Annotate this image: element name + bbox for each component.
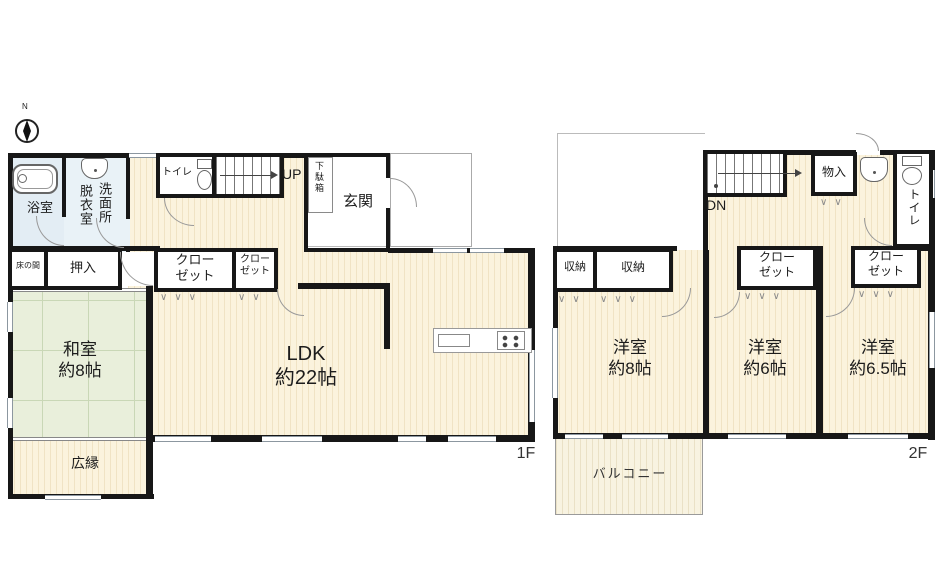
window-marker xyxy=(728,434,786,439)
folding-door-marker: ∨∨∨ xyxy=(744,292,812,302)
wall-segment xyxy=(703,250,709,438)
stair-arrowhead-icon xyxy=(795,169,802,177)
stair-arrow-start xyxy=(714,184,718,188)
roof-outline xyxy=(557,133,558,247)
window-marker xyxy=(552,328,558,398)
kitchen-partition-wall xyxy=(384,283,390,349)
compass-north-label: N xyxy=(22,102,28,111)
stair-arrow-icon xyxy=(220,175,272,176)
bathtub-icon xyxy=(12,164,58,194)
window-marker xyxy=(448,436,496,442)
entrance-step-line xyxy=(308,246,386,247)
folding-door-marker: ∨∨∨ xyxy=(600,295,668,305)
window-marker xyxy=(622,434,668,439)
storage-b-label: 収納 xyxy=(598,260,668,275)
stove-icon xyxy=(497,331,525,350)
window-marker xyxy=(398,436,426,442)
entrance-label: 玄関 xyxy=(330,193,386,211)
storage-a-label: 収納 xyxy=(555,261,595,274)
bedroom-6-label: 洋室 約6帖 xyxy=(715,338,815,379)
compass-north-icon xyxy=(10,110,44,146)
toilet-label-1f: トイレ xyxy=(159,167,195,179)
folding-door-marker: ∨∨∨ xyxy=(858,290,916,300)
door-arc xyxy=(856,133,879,151)
kitchen-partition-wall xyxy=(298,283,390,289)
toilet-icon xyxy=(901,156,923,184)
bedroom-6-5-label: 洋室 約6.5帖 xyxy=(828,338,928,379)
closet-label-1f-small: クロー ゼット xyxy=(234,254,276,278)
ldk-label: LDK 約22帖 xyxy=(256,342,356,391)
wall-segment xyxy=(62,153,66,217)
dressing-room-label-left: 脱衣室 xyxy=(76,184,95,226)
floor2-label: 2F xyxy=(902,444,934,464)
window-marker xyxy=(433,248,467,253)
closet-east-label: クロー ゼット xyxy=(854,249,918,278)
sliding-door-marker xyxy=(13,437,146,441)
folding-door-marker: ∨∨ xyxy=(558,295,594,305)
window-marker xyxy=(7,302,13,332)
balcony-label: バルコニー xyxy=(582,466,678,482)
storage-small-label: 物入 xyxy=(814,165,854,180)
veranda-label: 広縁 xyxy=(55,455,115,472)
bedroom-8-label: 洋室 約8帖 xyxy=(580,338,680,379)
window-marker xyxy=(529,350,535,422)
kitchen-sink-icon xyxy=(438,334,470,347)
folding-door-marker: ∨∨ xyxy=(238,293,278,303)
window-marker xyxy=(470,248,504,253)
window-marker xyxy=(155,436,211,442)
floorplan-canvas: N トイレ UP 下駄箱 玄関 床の間 xyxy=(0,0,940,564)
window-marker xyxy=(848,434,908,439)
washbasin-icon xyxy=(860,157,888,182)
closet-label-1f-large: クロー ゼット xyxy=(158,252,232,284)
closet-center-label: クロー ゼット xyxy=(742,250,812,279)
stair-arrowhead-icon xyxy=(271,171,278,179)
roof-outline xyxy=(557,133,705,134)
toilet-icon xyxy=(197,159,212,190)
window-marker xyxy=(129,153,157,158)
wall-segment xyxy=(126,153,130,219)
window-marker xyxy=(45,495,101,500)
wall-segment xyxy=(146,286,153,499)
folding-door-marker: ∨∨∨ xyxy=(160,293,234,303)
toilet-label-2f: トイレ xyxy=(906,188,923,227)
shoe-cabinet-label: 下駄箱 xyxy=(313,161,326,194)
wall-segment xyxy=(816,246,823,438)
stairs-dn-label: DN xyxy=(706,197,736,214)
tokonoma-label: 床の間 xyxy=(10,261,46,271)
stair-arrow-icon xyxy=(718,173,796,174)
window-marker xyxy=(929,312,935,368)
floor1-label: 1F xyxy=(510,444,542,464)
window-marker xyxy=(262,436,322,442)
window-marker xyxy=(565,434,603,439)
compass-icon: N xyxy=(10,110,44,146)
japanese-room-label: 和室 約8帖 xyxy=(30,340,130,381)
window-marker xyxy=(7,398,13,428)
oshiire-label: 押入 xyxy=(50,260,116,276)
folding-door-marker: ∨∨ xyxy=(820,198,852,208)
bathroom-label: 浴室 xyxy=(18,200,62,216)
